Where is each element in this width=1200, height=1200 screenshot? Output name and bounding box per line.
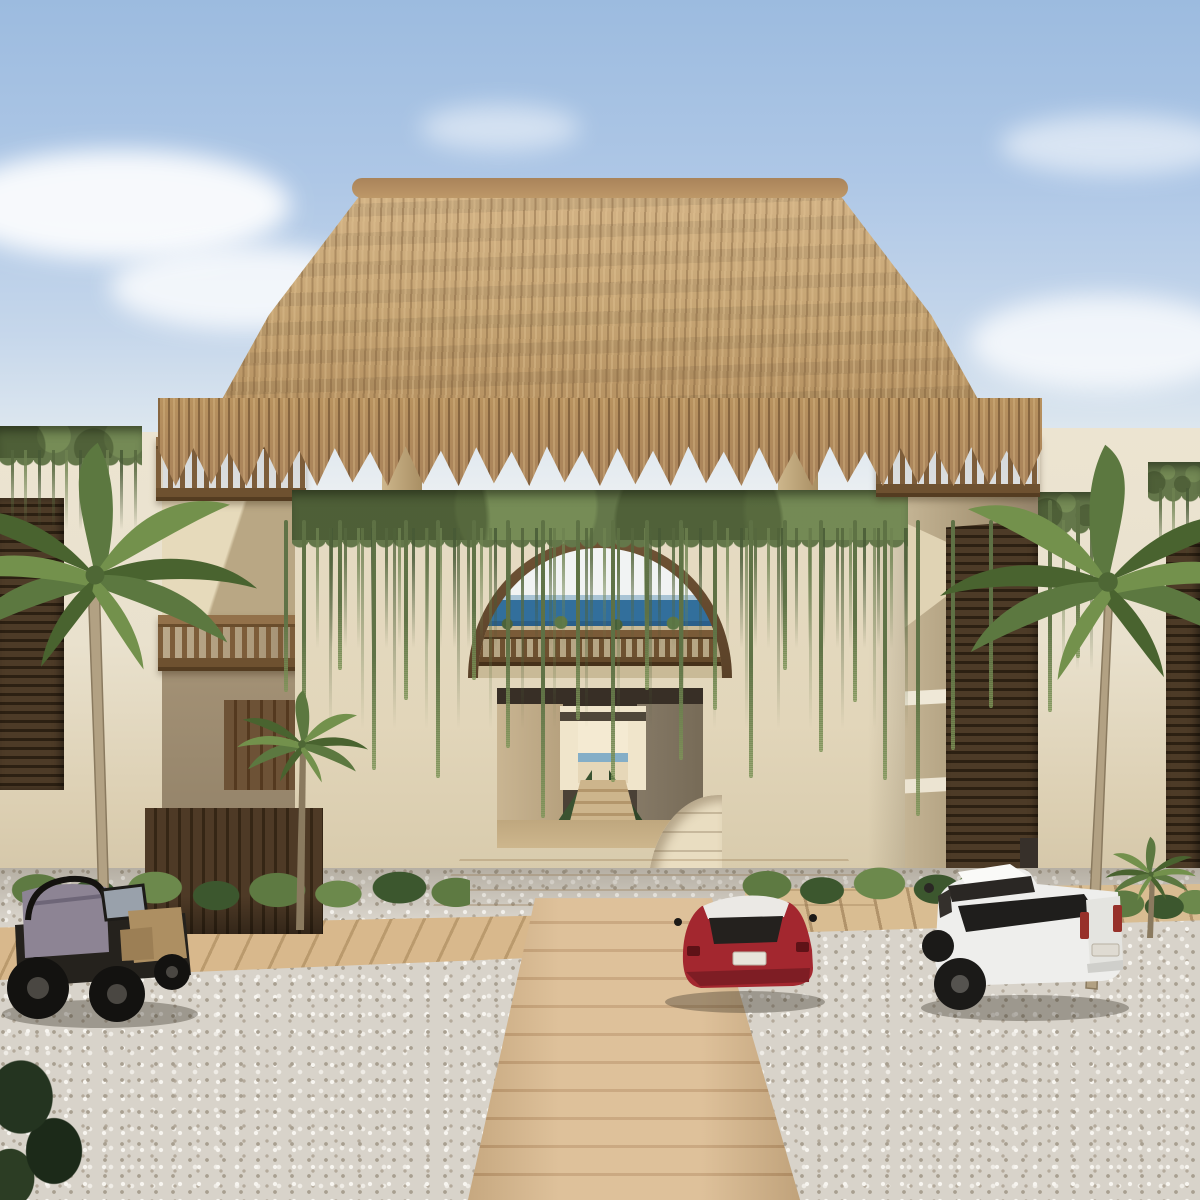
red-hatchback [665,895,825,1013]
safari-jeep [2,879,198,1028]
vehicles [0,0,1200,1200]
resort-exterior-scene [0,0,1200,1200]
white-pickup [921,864,1129,1021]
